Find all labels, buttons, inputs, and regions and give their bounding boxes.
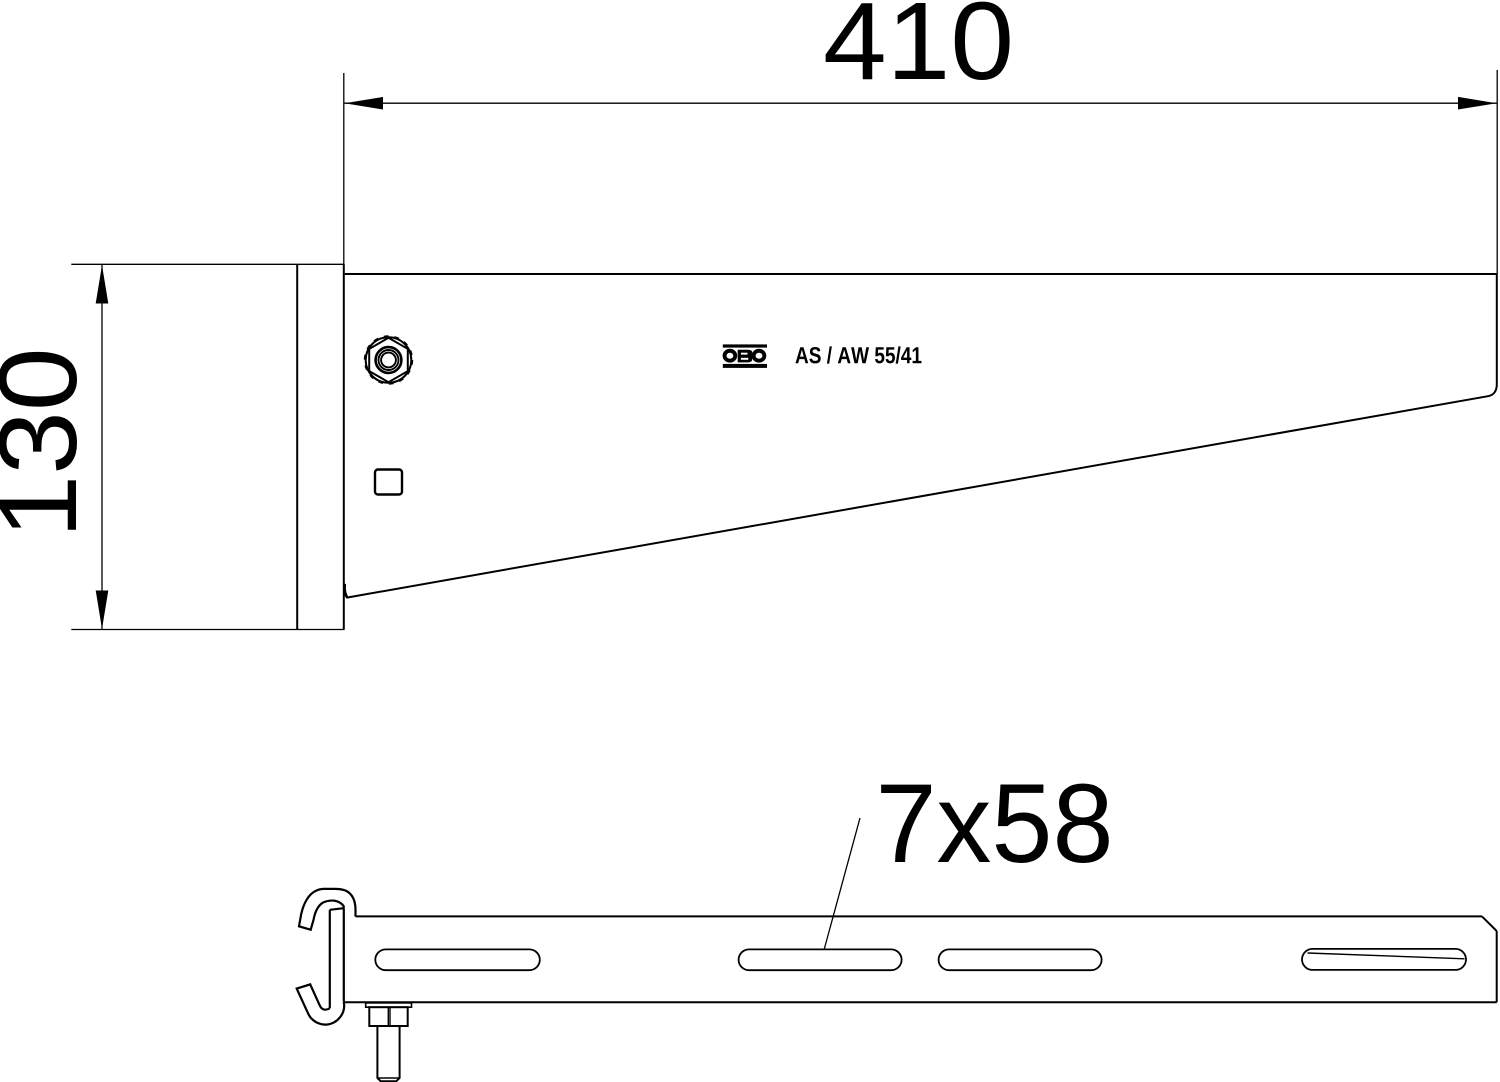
svg-text:410: 410 <box>823 0 1014 103</box>
svg-text:130: 130 <box>0 348 100 539</box>
svg-text:7x58: 7x58 <box>876 761 1114 886</box>
